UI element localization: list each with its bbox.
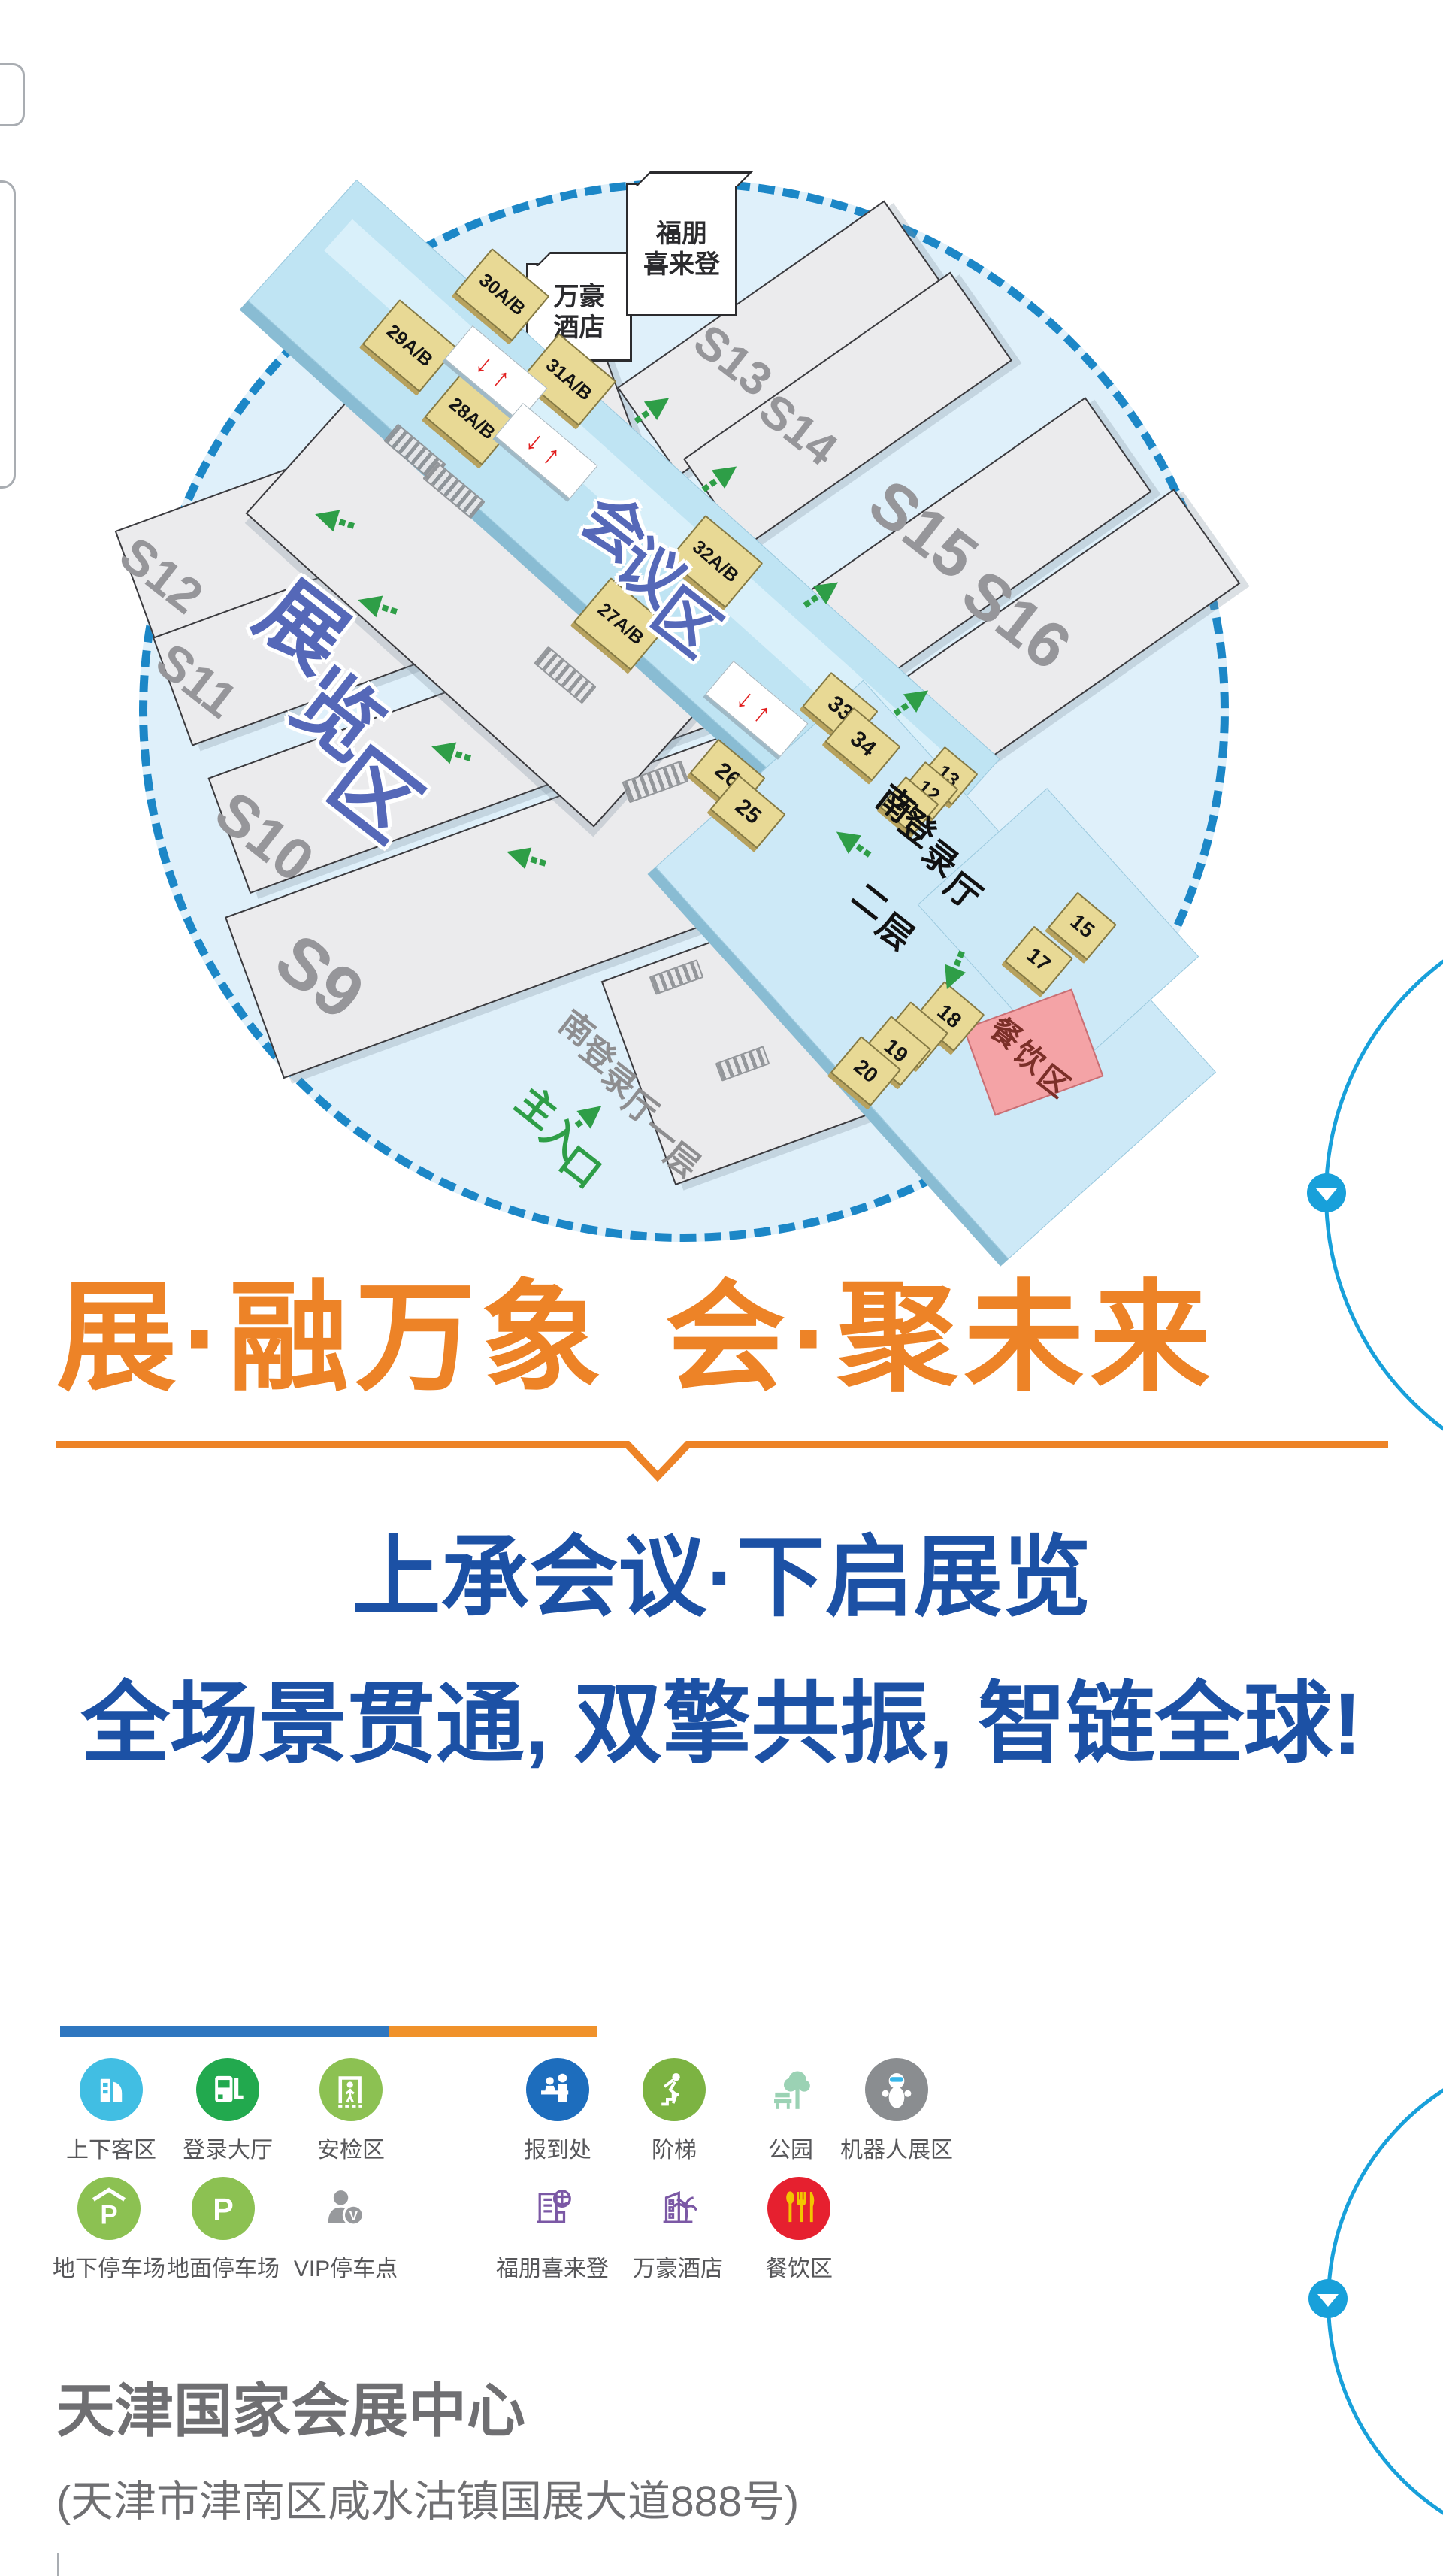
dining-icon	[767, 2177, 830, 2240]
passenger-dropoff-icon	[80, 2058, 143, 2121]
legend-label: VIP停车点	[294, 2250, 398, 2283]
hotel-label: 福朋	[656, 219, 707, 250]
svg-text:P: P	[100, 2201, 117, 2230]
vip-parking-icon: V	[314, 2177, 377, 2240]
legend-label: 福朋喜来登	[496, 2250, 609, 2283]
chevron-down-icon	[1317, 2294, 1339, 2307]
legend-divider-blue	[60, 2026, 389, 2037]
scroll-down-button[interactable]	[1307, 1173, 1346, 1212]
robot-zone-icon	[865, 2058, 928, 2121]
ground-parking-icon: P	[192, 2177, 255, 2240]
legend-divider-orange	[389, 2026, 597, 2037]
legend-label: 餐饮区	[765, 2250, 833, 2283]
bottom-line-decoration	[57, 2553, 59, 2576]
venue-address: (天津市津南区咸水沽镇国展大道888号)	[56, 2467, 799, 2529]
legend-label: 机器人展区	[840, 2131, 953, 2164]
tagline-line2: 全场景贯通, 双擎共振, 智链全球!	[0, 1680, 1443, 1769]
corner-line-decoration	[0, 180, 16, 489]
headline-right: 会·聚未来	[665, 1278, 1216, 1398]
legend-label: 万豪酒店	[633, 2250, 723, 2283]
legend-item-robot-zone: 机器人展区	[821, 2058, 972, 2164]
registration-icon	[526, 2058, 589, 2121]
marriott-hotel-icon	[646, 2177, 709, 2240]
tagline-line1: 上承会议·下启展览	[0, 1533, 1443, 1622]
corner-line-decoration	[0, 63, 25, 126]
legend-label: 报到处	[524, 2131, 591, 2164]
four-points-hotel-icon	[521, 2177, 584, 2240]
legend-label: 上下客区	[66, 2131, 156, 2164]
legend-label: 地面停车场	[167, 2250, 280, 2283]
legend-item-dining: 餐饮区	[724, 2177, 874, 2283]
poster-page: 万豪 酒店 福朋 喜来登 29A/B 30A/B 28A/B 31A/B 27A…	[0, 0, 1443, 2576]
headline-left: 展·融万象	[56, 1278, 607, 1398]
svg-text:V: V	[349, 2209, 358, 2223]
four-points-hotel-building: 福朋 喜来登	[626, 183, 737, 316]
legend-label: 阶梯	[652, 2131, 697, 2164]
hotel-label: 万豪	[554, 282, 605, 313]
login-hall-icon	[196, 2058, 259, 2121]
venue-name: 天津国家会展中心	[56, 2364, 525, 2448]
stairs-icon	[643, 2058, 706, 2121]
legend-item-security: 安检区	[276, 2058, 426, 2164]
legend-label: 登录大厅	[183, 2131, 273, 2164]
underground-parking-icon: P	[77, 2177, 141, 2240]
security-check-icon	[319, 2058, 383, 2121]
legend-label: 公园	[768, 2131, 813, 2164]
hotel-label: 喜来登	[643, 250, 720, 280]
legend-item-vip-parking: V VIP停车点	[271, 2177, 421, 2283]
svg-text:P: P	[213, 2193, 234, 2227]
park-icon	[759, 2058, 822, 2121]
legend-label: 安检区	[317, 2131, 385, 2164]
chevron-down-icon	[1316, 1188, 1337, 1201]
scroll-down-button[interactable]	[1308, 2279, 1348, 2318]
headline-underline	[56, 1440, 1402, 1485]
